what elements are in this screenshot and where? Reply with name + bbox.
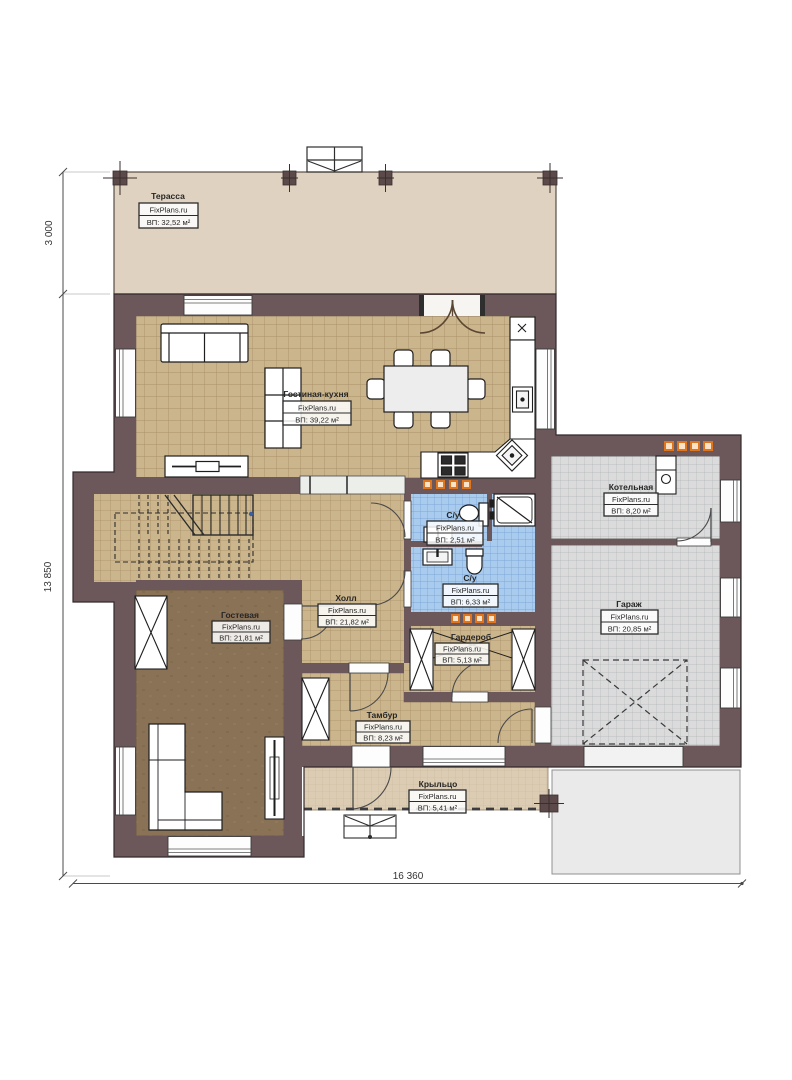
svg-text:Гостевая: Гостевая [221,610,259,620]
svg-text:ВП: 21,82 м²: ВП: 21,82 м² [325,618,369,627]
svg-text:ВП: 2,51 м²: ВП: 2,51 м² [435,536,475,545]
svg-text:Котельная: Котельная [609,482,654,492]
svg-text:Гостиная-кухня: Гостиная-кухня [283,389,348,399]
svg-text:FixPlans.ru: FixPlans.ru [298,404,336,413]
svg-text:Крыльцо: Крыльцо [419,779,458,789]
svg-text:FixPlans.ru: FixPlans.ru [452,586,490,595]
svg-text:FixPlans.ru: FixPlans.ru [364,723,402,732]
svg-text:Терасса: Терасса [151,191,185,201]
svg-text:ВП: 6,33 м²: ВП: 6,33 м² [451,598,491,607]
svg-text:ВП: 39,22 м²: ВП: 39,22 м² [295,416,339,425]
svg-text:FixPlans.ru: FixPlans.ru [612,495,650,504]
svg-text:ВП: 32,52 м²: ВП: 32,52 м² [147,218,191,227]
svg-text:3 000: 3 000 [44,220,55,245]
svg-text:С/у: С/у [446,510,460,520]
svg-text:FixPlans.ru: FixPlans.ru [150,206,188,215]
svg-text:С/у: С/у [463,573,477,583]
svg-text:FixPlans.ru: FixPlans.ru [222,623,260,632]
svg-text:Гардероб: Гардероб [451,632,491,642]
svg-text:Гараж: Гараж [616,599,642,609]
svg-text:ВП: 8,20 м²: ВП: 8,20 м² [611,507,651,516]
svg-text:Холл: Холл [335,593,356,603]
svg-text:FixPlans.ru: FixPlans.ru [419,792,457,801]
svg-text:ВП: 21,81 м²: ВП: 21,81 м² [219,634,263,643]
svg-text:Тамбур: Тамбур [367,710,398,720]
svg-text:FixPlans.ru: FixPlans.ru [611,613,649,622]
svg-text:ВП: 5,41 м²: ВП: 5,41 м² [418,804,458,813]
svg-text:ВП: 8,23 м²: ВП: 8,23 м² [363,734,403,743]
svg-text:16 360: 16 360 [393,871,424,882]
svg-text:FixPlans.ru: FixPlans.ru [436,524,474,533]
svg-text:ВП: 5,13 м²: ВП: 5,13 м² [442,656,482,665]
svg-text:13 850: 13 850 [43,561,54,592]
svg-text:FixPlans.ru: FixPlans.ru [443,645,481,654]
svg-text:ВП: 20,85 м²: ВП: 20,85 м² [608,625,652,634]
svg-text:FixPlans.ru: FixPlans.ru [328,606,366,615]
